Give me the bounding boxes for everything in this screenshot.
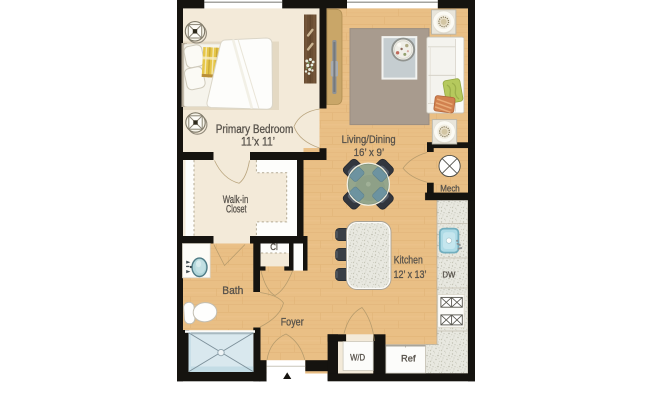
svg-text:Primary Bedroom: Primary Bedroom: [216, 124, 294, 136]
svg-text:W/D: W/D: [350, 352, 365, 362]
svg-text:Mech: Mech: [440, 183, 460, 193]
svg-text:Living/Dining: Living/Dining: [342, 134, 396, 146]
svg-text:Foyer: Foyer: [281, 317, 304, 329]
svg-text:Closet: Closet: [226, 204, 247, 216]
svg-text:12’ x 13’: 12’ x 13’: [394, 269, 427, 281]
svg-text:11’x 11’: 11’x 11’: [241, 136, 275, 148]
svg-text:Bath: Bath: [222, 285, 243, 297]
svg-text:Ref: Ref: [401, 354, 416, 364]
svg-text:Kitchen: Kitchen: [394, 255, 423, 267]
svg-text:Cl: Cl: [270, 242, 278, 252]
svg-text:16’ x 9’: 16’ x 9’: [354, 147, 385, 159]
svg-text:DW: DW: [442, 271, 455, 280]
